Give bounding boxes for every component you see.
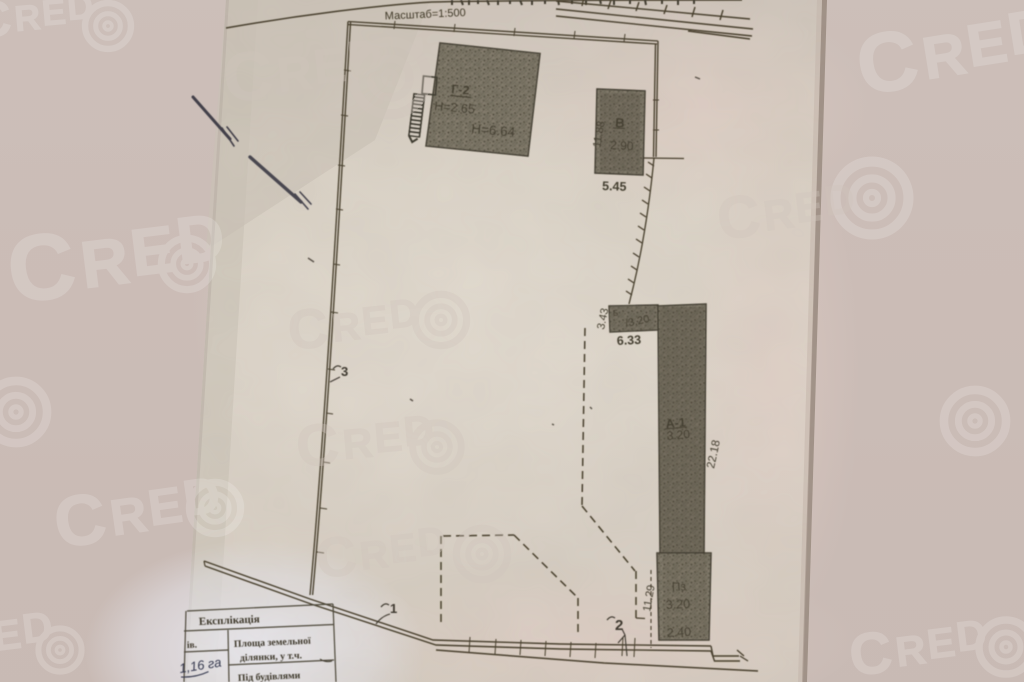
svg-text:5.45: 5.45: [602, 179, 627, 194]
svg-text:3.20: 3.20: [665, 597, 690, 612]
svg-text:2.90: 2.90: [610, 138, 634, 153]
svg-text:6.33: 6.33: [616, 333, 641, 348]
svg-text:2.40: 2.40: [666, 625, 691, 640]
svg-text:ів.: ів.: [187, 640, 198, 651]
svg-text:2: 2: [615, 617, 623, 634]
svg-text:3.20: 3.20: [666, 427, 691, 443]
svg-text:1: 1: [390, 601, 397, 616]
svg-text:Пз: Пз: [671, 579, 686, 594]
svg-text:Під будівлями: Під будівлями: [238, 670, 301, 682]
svg-text:3: 3: [341, 364, 348, 379]
